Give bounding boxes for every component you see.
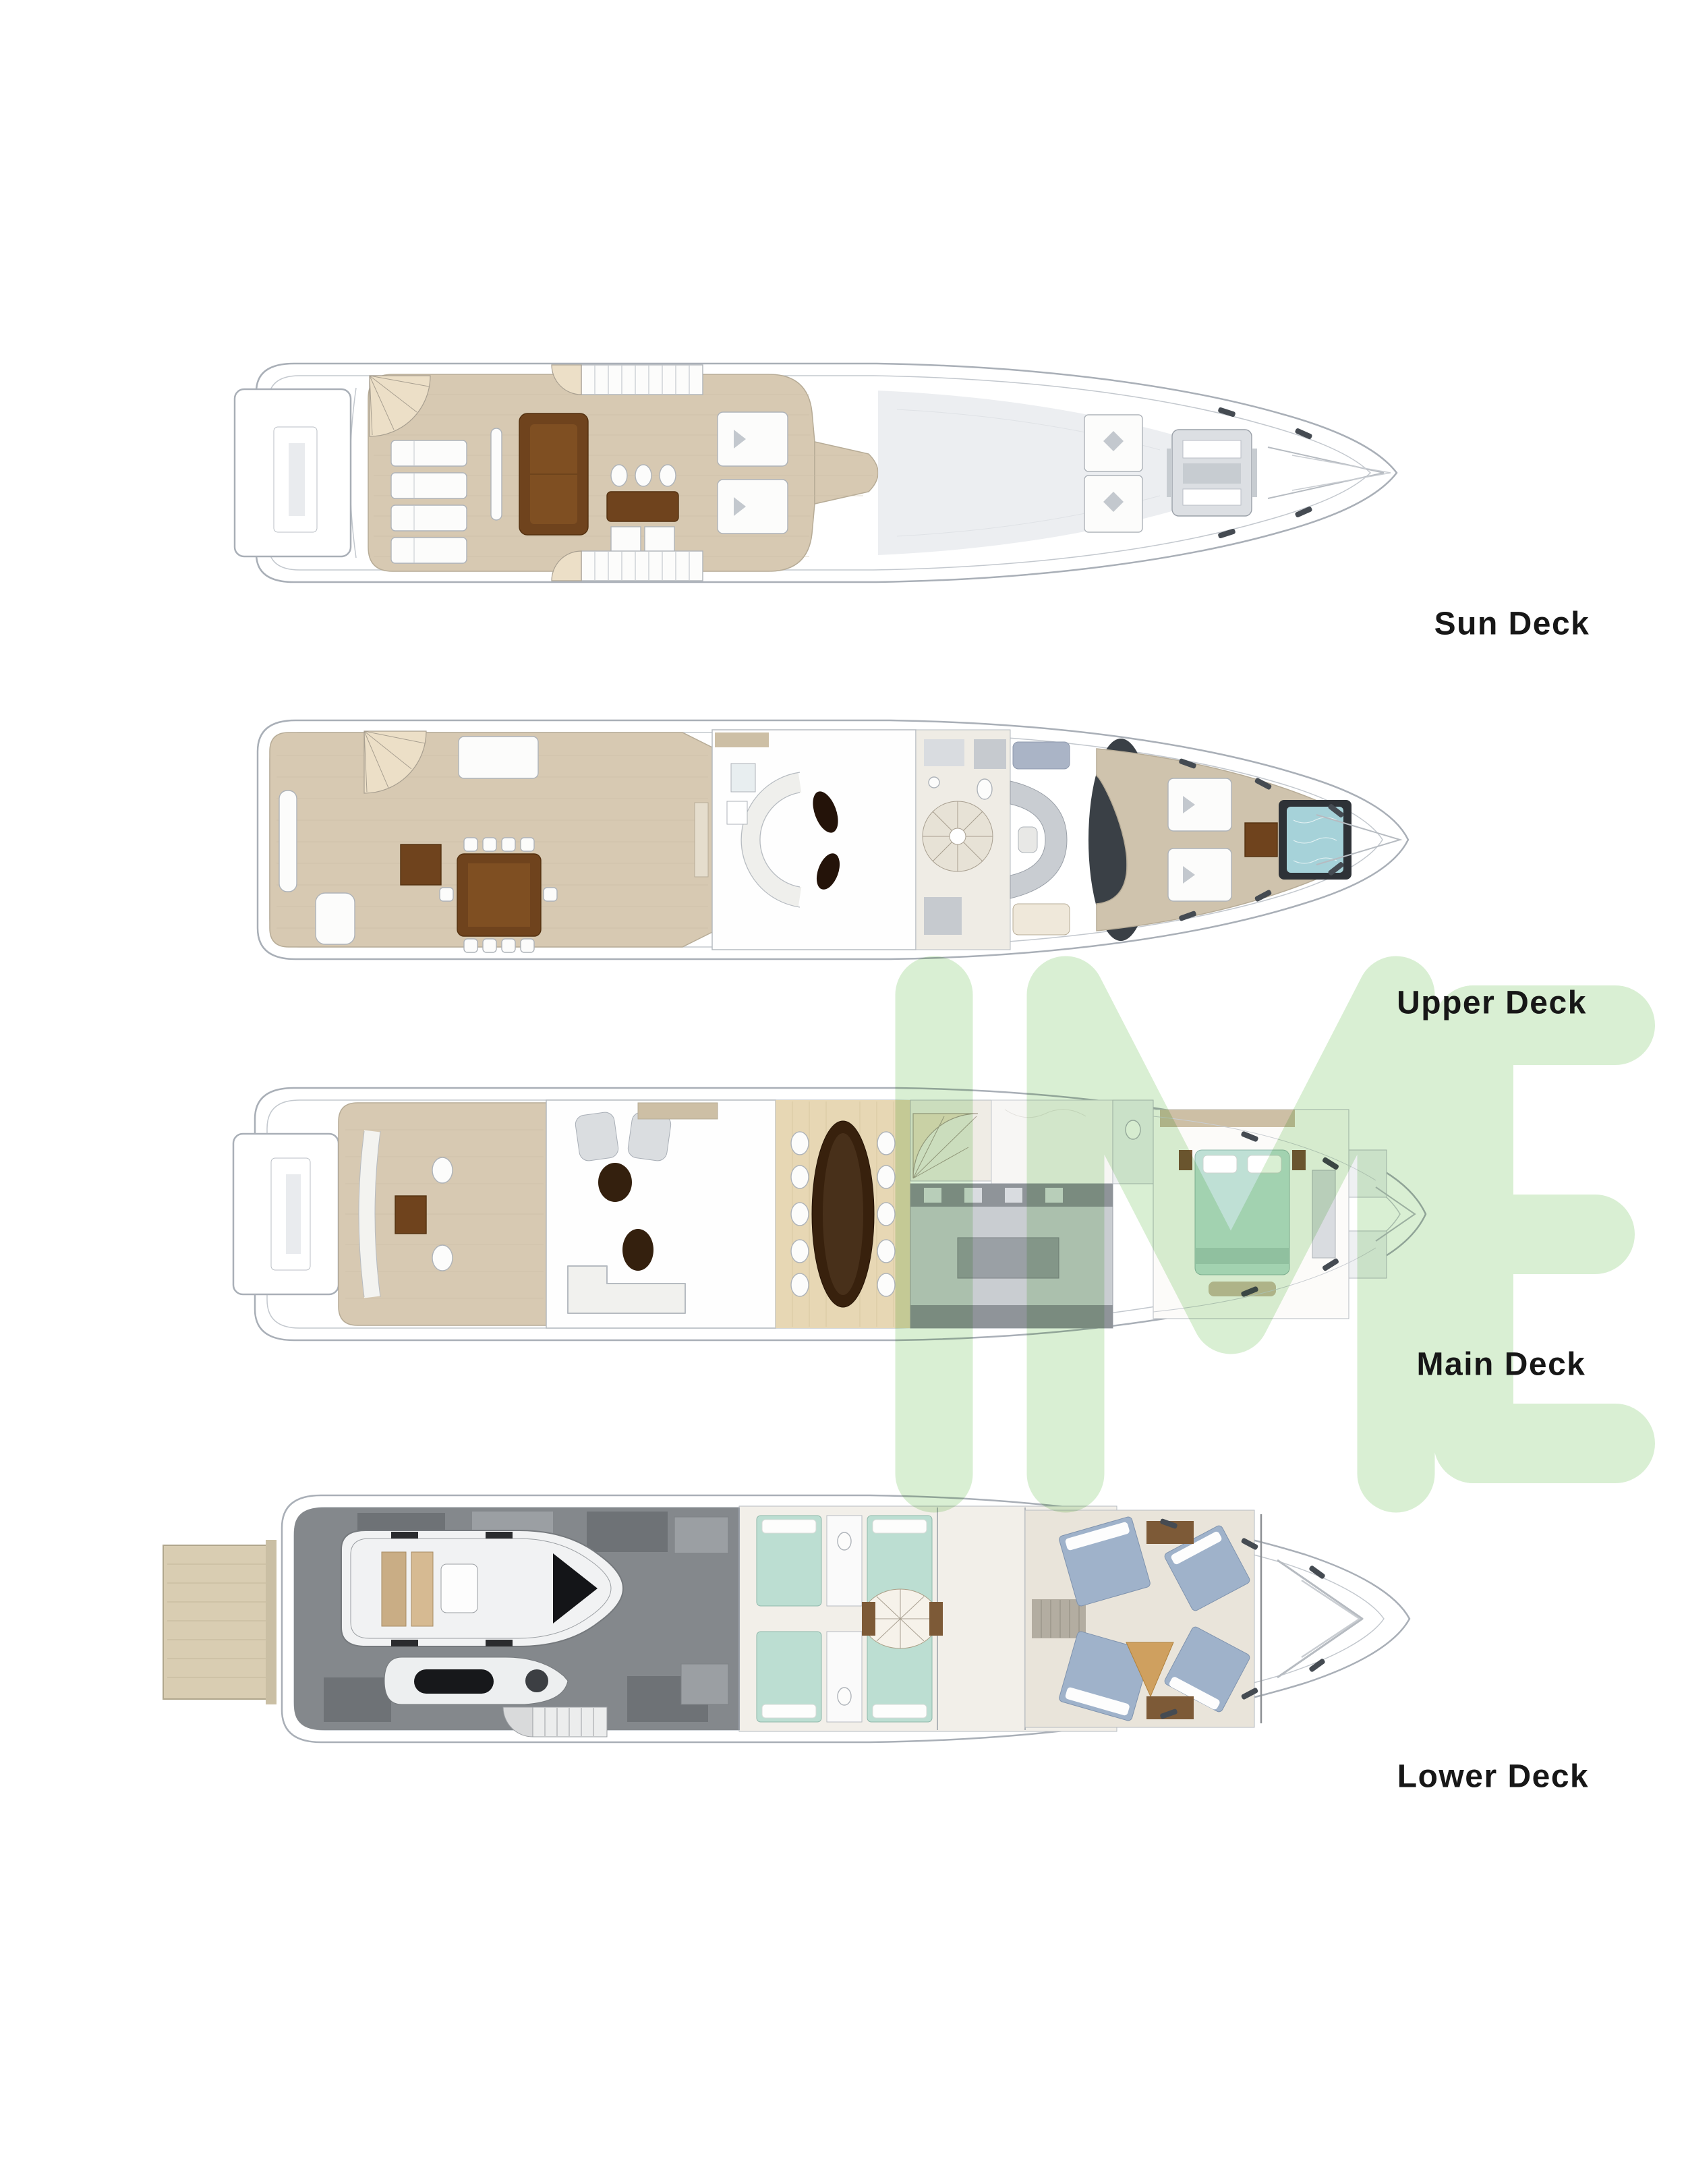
sun-deck-label: Sun Deck bbox=[1434, 606, 1590, 643]
main-deck-drawing bbox=[229, 1069, 1436, 1359]
salon bbox=[546, 1100, 776, 1328]
cabinet bbox=[715, 732, 769, 747]
crew-stairs bbox=[1032, 1599, 1086, 1638]
main-deck-label: Main Deck bbox=[1417, 1346, 1586, 1383]
machinery bbox=[674, 1517, 728, 1553]
machinery bbox=[681, 1664, 728, 1704]
captain-berth bbox=[1013, 904, 1070, 935]
sink bbox=[929, 777, 939, 788]
vanity bbox=[1312, 1170, 1335, 1258]
main-deck-plan bbox=[229, 1069, 1436, 1359]
upper-deck-label: Upper Deck bbox=[1397, 985, 1587, 1022]
spiral-staircase bbox=[923, 801, 993, 871]
helm-seat bbox=[1018, 827, 1037, 853]
crew-berth bbox=[1013, 742, 1070, 769]
sun-deck-plan bbox=[229, 347, 1406, 598]
round-table bbox=[622, 1229, 653, 1271]
garage bbox=[294, 1507, 739, 1737]
page: Sun Deck Upper Deck Main Deck Lower Deck bbox=[0, 0, 1686, 2184]
crew-area bbox=[1025, 1510, 1254, 1727]
al-fresco-table bbox=[519, 413, 588, 535]
upper-deck-drawing bbox=[229, 701, 1416, 978]
toilet bbox=[1126, 1120, 1140, 1139]
toilet bbox=[838, 1532, 851, 1550]
upper-deck-plan bbox=[229, 701, 1416, 978]
stairs-top bbox=[552, 365, 703, 395]
stern-platform bbox=[235, 389, 351, 556]
guest-bed bbox=[757, 1516, 821, 1606]
chair bbox=[432, 1245, 453, 1271]
nightstand bbox=[1292, 1150, 1306, 1170]
jet-ski bbox=[384, 1657, 568, 1704]
swim-platform bbox=[163, 1540, 277, 1704]
round-table bbox=[598, 1163, 632, 1202]
side-sofa bbox=[279, 791, 297, 892]
stairs-bottom bbox=[552, 551, 703, 581]
stern-platform bbox=[233, 1134, 339, 1294]
bathroom bbox=[827, 1632, 862, 1722]
bathroom bbox=[827, 1516, 862, 1606]
toilet bbox=[838, 1688, 851, 1705]
sky-lounge bbox=[712, 730, 916, 950]
aft-table bbox=[395, 1196, 426, 1234]
chair bbox=[432, 1157, 453, 1183]
chaise bbox=[316, 893, 355, 944]
galley-island bbox=[958, 1238, 1059, 1278]
sun-deck-drawing bbox=[229, 347, 1406, 598]
lower-deck-drawing bbox=[155, 1474, 1450, 1764]
fore-table bbox=[1245, 823, 1277, 857]
armchair bbox=[575, 1111, 620, 1161]
tv-cabinet bbox=[1160, 1110, 1295, 1127]
bench bbox=[491, 428, 502, 520]
lower-deck-plan bbox=[155, 1474, 1450, 1764]
guest-bed bbox=[757, 1632, 821, 1722]
mast-structure bbox=[1167, 430, 1257, 516]
lower-deck-label: Lower Deck bbox=[1397, 1758, 1589, 1795]
aft-deck bbox=[339, 1103, 546, 1325]
master-bed bbox=[1195, 1150, 1289, 1275]
side-table bbox=[401, 844, 441, 885]
aft-deck bbox=[270, 731, 712, 952]
toilet bbox=[977, 779, 992, 799]
pantry-stairs bbox=[916, 730, 1010, 950]
nightstand bbox=[1179, 1150, 1192, 1170]
aft-sun-deck bbox=[368, 365, 878, 581]
dining-area bbox=[776, 1100, 910, 1328]
skylight bbox=[459, 737, 538, 778]
transom-sofa bbox=[367, 1131, 372, 1297]
sideboard bbox=[638, 1103, 718, 1119]
garage-stairs bbox=[503, 1707, 607, 1737]
day-head bbox=[1113, 1100, 1153, 1184]
tender-boat bbox=[341, 1530, 623, 1646]
stairs-galley bbox=[910, 1100, 1113, 1328]
